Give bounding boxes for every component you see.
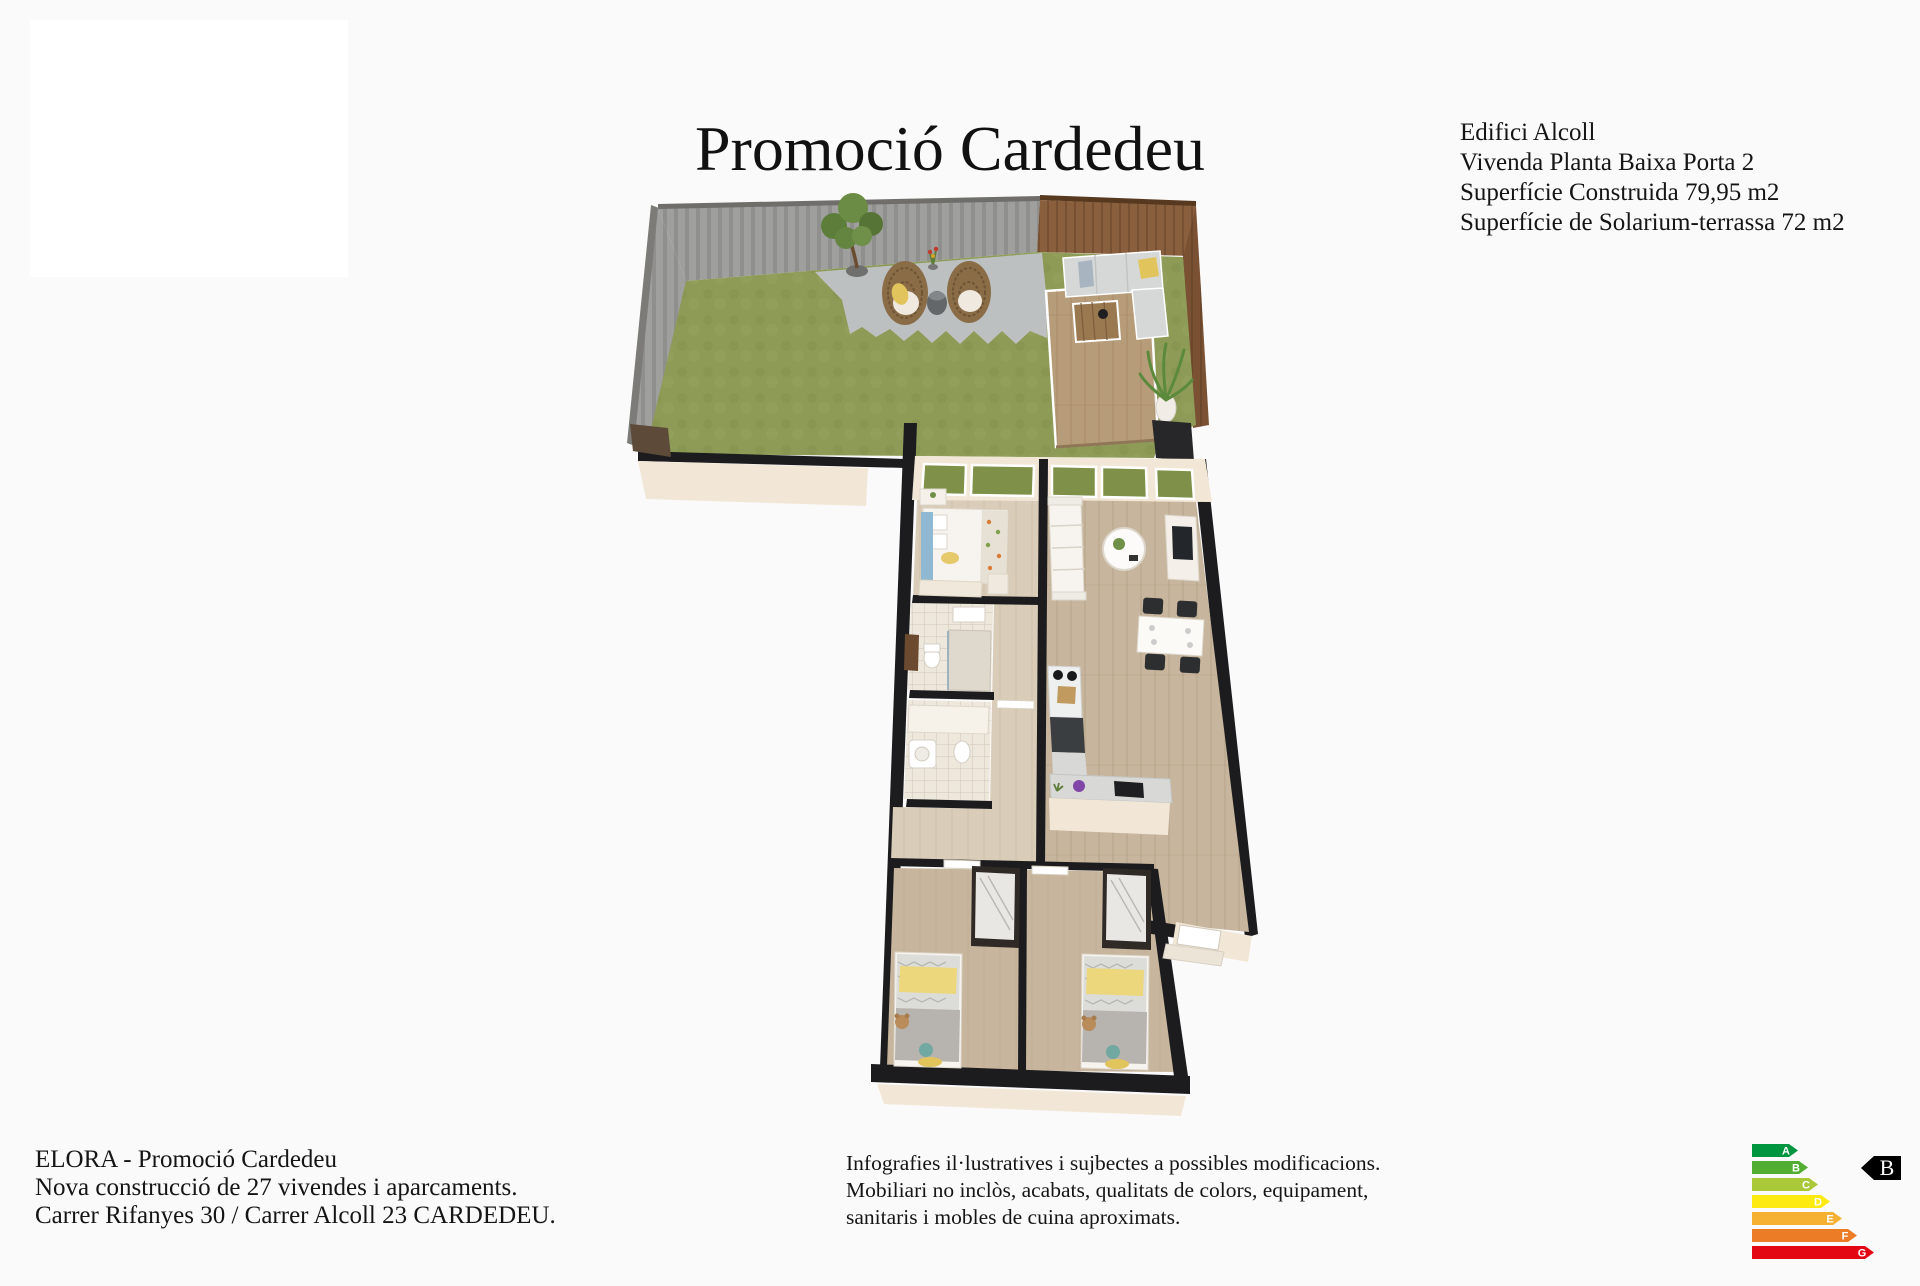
- side-door: [904, 634, 919, 671]
- kitchen-counter-dark: [1050, 717, 1085, 753]
- dining-chair: [1145, 653, 1166, 670]
- garden-window-band: [912, 456, 1212, 502]
- wicker-chair-1: [882, 261, 928, 325]
- dining-chair: [1177, 600, 1198, 617]
- developer-info-line: Carrer Rifanyes 30 / Carrer Alcoll 23 CA…: [35, 1202, 556, 1230]
- energy-letter-G: G: [1858, 1248, 1867, 1260]
- kitchen-cabinet-front: [1049, 798, 1170, 835]
- sofa-yellow-pillow: [1138, 257, 1159, 279]
- round-rug: [918, 1057, 942, 1067]
- bedroom-bench: [988, 574, 1008, 594]
- property-info-line: Superfície Construida 79,95 m2: [1460, 178, 1845, 208]
- disclaimer-line: sanitaris i mobles de cuina aproximats.: [846, 1204, 1380, 1231]
- floor-plan-render: [600, 160, 1300, 1140]
- property-info-line: Superfície de Solarium-terrassa 72 m2: [1460, 208, 1845, 238]
- disclaimer: Infografies il·lustratives i sujbectes a…: [846, 1150, 1380, 1231]
- kitchen-counter-light: [1052, 752, 1087, 776]
- round-rug: [1105, 1059, 1129, 1069]
- energy-letter-C: C: [1802, 1180, 1810, 1192]
- disclaimer-line: Mobiliari no inclòs, acabats, qualitats …: [846, 1177, 1380, 1204]
- energy-letter-A: A: [1782, 1146, 1790, 1158]
- logo-placeholder: [30, 20, 348, 277]
- energy-arrow-A: [1752, 1144, 1798, 1157]
- energy-letter-F: F: [1842, 1231, 1849, 1243]
- washbasin: [953, 607, 985, 622]
- teal-cushion: [1106, 1045, 1120, 1059]
- energy-letter-B: B: [1792, 1163, 1800, 1175]
- dining-chair: [1143, 597, 1164, 614]
- disclaimer-line: Infografies il·lustratives i sujbectes a…: [846, 1150, 1380, 1177]
- purple-kettle: [1073, 780, 1085, 792]
- deck-black-planter: [1152, 420, 1194, 461]
- tv: [1172, 526, 1193, 560]
- property-info: Edifici Alcoll Vivenda Planta Baixa Port…: [1460, 118, 1845, 238]
- dining-chair: [1180, 656, 1201, 673]
- energy-efficiency-label: ABCDEFG B: [1740, 1133, 1920, 1283]
- developer-info: ELORA - Promoció Cardedeu Nova construcc…: [35, 1146, 556, 1230]
- property-info-line: Edifici Alcoll: [1460, 118, 1845, 148]
- vanity: [908, 705, 989, 734]
- coffee-table: [1103, 528, 1145, 570]
- energy-rating-pointer: B: [1861, 1155, 1901, 1180]
- kitchen-sink: [1114, 781, 1144, 798]
- developer-info-line: Nova construcció de 27 vivendes i aparca…: [35, 1174, 556, 1202]
- bed-blanket: [980, 510, 1008, 584]
- bedroom-dresser: [919, 580, 982, 597]
- property-info-line: Vivenda Planta Baixa Porta 2: [1460, 148, 1845, 178]
- sofa-blue-throw: [1078, 260, 1094, 288]
- energy-letter-E: E: [1826, 1214, 1833, 1226]
- kitchen-counter-bottom: [1050, 774, 1172, 803]
- shower: [948, 630, 991, 691]
- developer-info-line: ELORA - Promoció Cardedeu: [35, 1146, 556, 1174]
- dining-table: [1137, 616, 1204, 656]
- garden-side-table: [927, 291, 947, 315]
- bed-blue-throw: [921, 512, 933, 580]
- brochure-page: { "page": { "background_color": "#fafafa…: [0, 0, 1920, 1286]
- bed-yellow-pillow: [1086, 968, 1144, 996]
- energy-letter-D: D: [1814, 1197, 1822, 1209]
- bedroom-rug: [941, 552, 959, 564]
- energy-rating-letter: B: [1880, 1155, 1895, 1180]
- bed-yellow-pillow: [899, 966, 957, 994]
- energy-arrow-G: [1752, 1246, 1874, 1259]
- deck-coffee-table: [1073, 301, 1120, 342]
- cutting-board: [1057, 686, 1076, 704]
- energy-scale: ABCDEFG: [1752, 1144, 1874, 1260]
- wicker-chair-2: [947, 261, 991, 323]
- garden-wall-wood-end: [630, 424, 671, 457]
- teal-cushion: [919, 1043, 933, 1057]
- sofa: [1049, 503, 1084, 595]
- apartment: [871, 423, 1258, 1116]
- toilet: [954, 741, 970, 763]
